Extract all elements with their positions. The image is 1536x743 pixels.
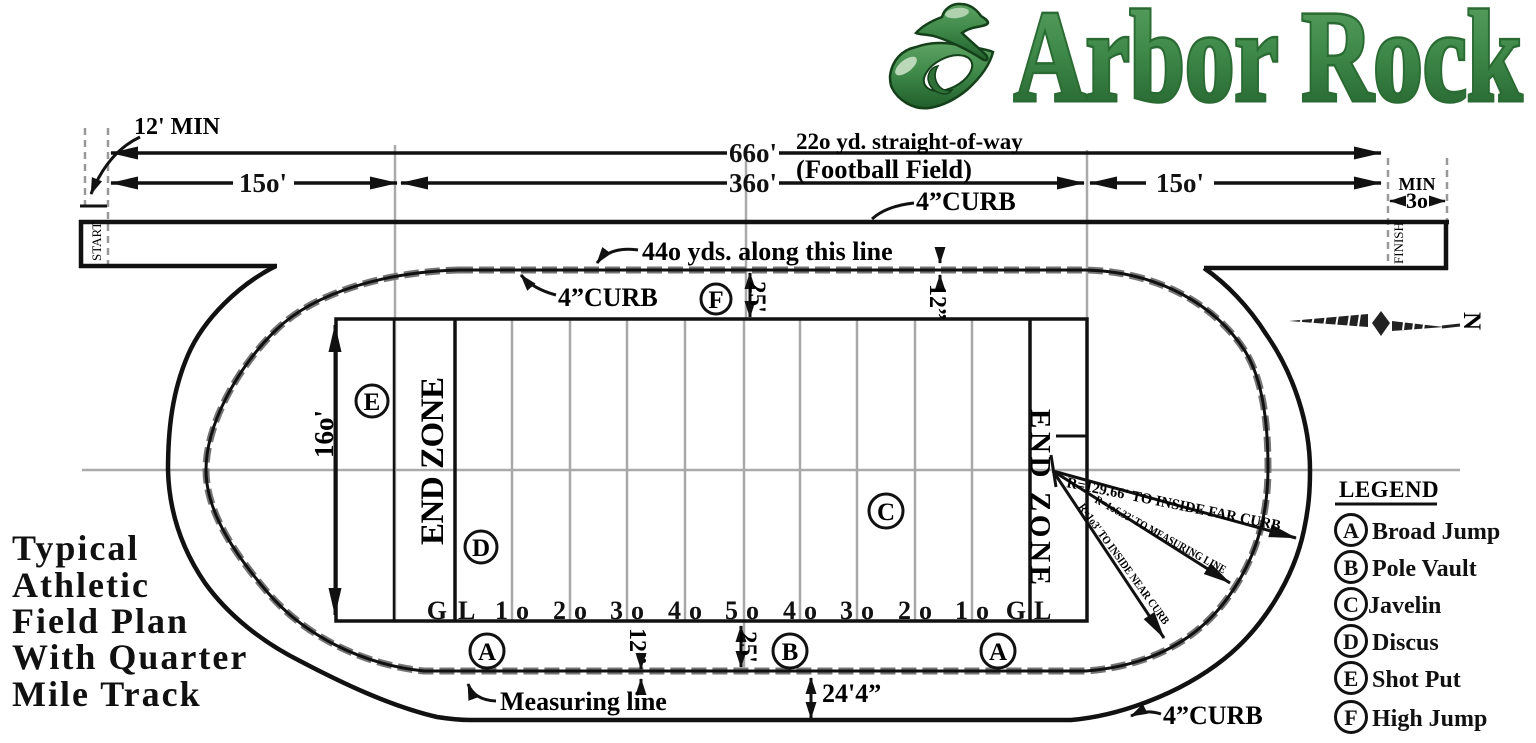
svg-text:LEGEND: LEGEND bbox=[1339, 477, 1439, 502]
svg-text:4”CURB: 4”CURB bbox=[916, 187, 1016, 216]
svg-text:Arbor Rock: Arbor Rock bbox=[1014, 0, 1523, 129]
svg-text:D: D bbox=[472, 535, 490, 562]
svg-text:L: L bbox=[458, 596, 475, 625]
svg-text:4”CURB: 4”CURB bbox=[1163, 701, 1263, 730]
svg-text:4”CURB: 4”CURB bbox=[558, 283, 658, 312]
svg-text:o: o bbox=[516, 596, 529, 625]
svg-text:A: A bbox=[478, 639, 496, 666]
svg-text:Broad Jump: Broad Jump bbox=[1372, 519, 1500, 545]
svg-text:12”: 12” bbox=[924, 284, 950, 320]
svg-text:With Quarter: With Quarter bbox=[12, 637, 248, 677]
svg-text:G: G bbox=[1006, 596, 1026, 625]
svg-text:C: C bbox=[1343, 592, 1359, 617]
svg-text:Typical: Typical bbox=[12, 528, 139, 568]
svg-text:1: 1 bbox=[955, 596, 968, 625]
svg-text:High Jump: High Jump bbox=[1372, 706, 1487, 732]
svg-text:25': 25' bbox=[743, 281, 770, 313]
svg-text:FINISH: FINISH bbox=[1391, 222, 1406, 264]
svg-text:F: F bbox=[708, 287, 723, 314]
svg-text:Javelin: Javelin bbox=[1368, 593, 1441, 619]
svg-text:D: D bbox=[1343, 629, 1359, 654]
svg-text:o: o bbox=[746, 596, 759, 625]
svg-text:Pole Vault: Pole Vault bbox=[1372, 556, 1477, 582]
svg-text:22o yd. straight-of-way: 22o yd. straight-of-way bbox=[796, 129, 1023, 154]
svg-text:Athletic: Athletic bbox=[12, 565, 150, 605]
svg-text:END ZONE: END ZONE bbox=[1024, 409, 1056, 585]
svg-text:G: G bbox=[427, 596, 447, 625]
svg-text:B: B bbox=[782, 639, 799, 666]
svg-text:44o yds. along this line: 44o yds. along this line bbox=[642, 237, 893, 266]
svg-text:N: N bbox=[1458, 312, 1485, 330]
svg-text:Field Plan: Field Plan bbox=[12, 601, 189, 641]
svg-text:66o': 66o' bbox=[729, 138, 777, 168]
svg-text:C: C bbox=[877, 499, 895, 526]
svg-text:A: A bbox=[989, 639, 1007, 666]
svg-text:E: E bbox=[364, 389, 381, 416]
svg-text:2: 2 bbox=[898, 596, 911, 625]
svg-text:A: A bbox=[1343, 518, 1359, 543]
svg-text:o: o bbox=[804, 596, 817, 625]
svg-text:F: F bbox=[1344, 705, 1357, 730]
svg-text:END ZONE: END ZONE bbox=[415, 377, 451, 545]
svg-text:15o': 15o' bbox=[1156, 168, 1204, 198]
svg-text:Measuring line: Measuring line bbox=[500, 687, 667, 716]
svg-text:24'4”: 24'4” bbox=[822, 679, 881, 708]
svg-text:Mile Track: Mile Track bbox=[12, 674, 202, 714]
svg-text:4: 4 bbox=[783, 596, 796, 625]
svg-text:5: 5 bbox=[725, 596, 738, 625]
svg-text:E: E bbox=[1344, 666, 1359, 691]
svg-text:L: L bbox=[1034, 596, 1051, 625]
svg-text:15o': 15o' bbox=[239, 168, 287, 198]
svg-text:25': 25' bbox=[734, 631, 761, 663]
svg-text:4: 4 bbox=[668, 596, 681, 625]
svg-text:(Football Field): (Football Field) bbox=[796, 154, 972, 184]
svg-text:o: o bbox=[861, 596, 874, 625]
svg-text:o: o bbox=[689, 596, 702, 625]
svg-text:1: 1 bbox=[495, 596, 508, 625]
svg-text:o: o bbox=[976, 596, 989, 625]
svg-text:o: o bbox=[919, 596, 932, 625]
svg-text:o: o bbox=[631, 596, 644, 625]
svg-text:3: 3 bbox=[840, 596, 853, 625]
svg-text:START: START bbox=[89, 222, 104, 261]
svg-text:3o: 3o bbox=[1406, 188, 1428, 213]
svg-text:o: o bbox=[574, 596, 587, 625]
svg-text:12”: 12” bbox=[624, 628, 650, 664]
svg-text:12' MIN: 12' MIN bbox=[134, 114, 221, 140]
svg-text:16o': 16o' bbox=[309, 410, 339, 458]
svg-text:B: B bbox=[1344, 555, 1359, 580]
svg-text:3: 3 bbox=[610, 596, 623, 625]
svg-text:36o': 36o' bbox=[729, 168, 777, 198]
svg-text:Shot Put: Shot Put bbox=[1372, 667, 1461, 693]
svg-text:Discus: Discus bbox=[1372, 630, 1439, 656]
svg-text:2: 2 bbox=[553, 596, 566, 625]
